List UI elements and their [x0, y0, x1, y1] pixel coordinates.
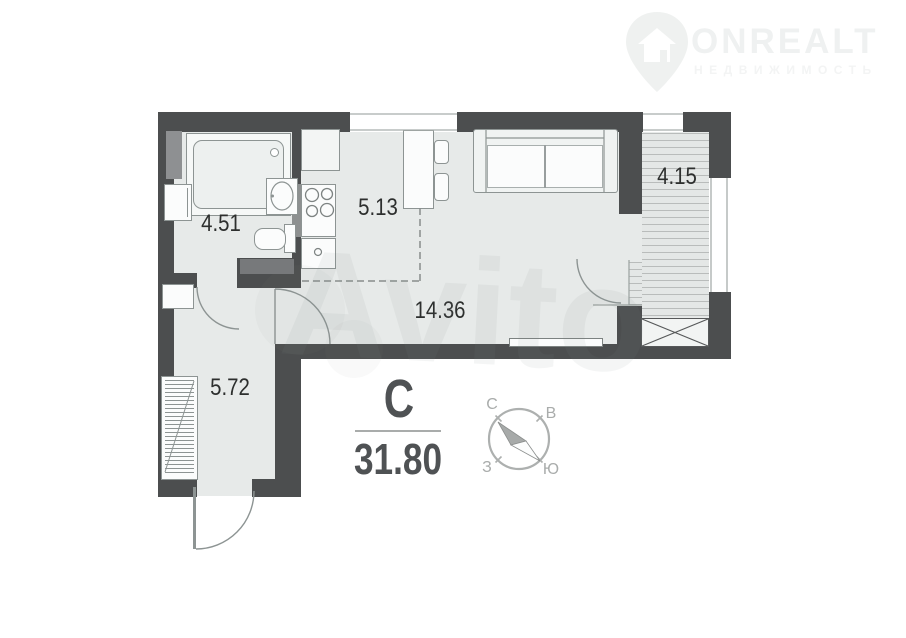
area-label-balcony: 4.15: [657, 163, 697, 191]
floorplan-screenshot: ONREALT НЕДВИЖИМОСТЬ: [0, 0, 906, 638]
bar-stool-2: [434, 173, 449, 201]
wardrobe: [161, 376, 198, 480]
wall-right-upper: [709, 120, 731, 178]
washbasin: [266, 178, 298, 215]
area-label-bathroom: 4.51: [201, 210, 241, 238]
window-balcony-top: [643, 112, 683, 132]
sofa-seat-left: [487, 145, 545, 188]
wall-hallway-bottom-right: [252, 479, 301, 497]
compass-ticks: [496, 416, 543, 463]
north-letter: С: [384, 368, 414, 430]
compass-label-north: С: [486, 396, 498, 414]
bathroom-cabinet-handle: [187, 188, 188, 217]
wardrobe-hangers: [165, 380, 194, 476]
window-balcony-right: [709, 178, 731, 292]
compass-label-south: Ю: [543, 461, 559, 479]
wall-right-lower: [709, 292, 731, 359]
compass-circle: [489, 409, 549, 469]
area-label-hallway: 5.72: [210, 374, 250, 402]
wall-balcony-divider-bottom: [617, 306, 642, 359]
balcony-hatch-area-small: [629, 262, 642, 305]
compass-needle-north: [498, 422, 526, 445]
kitchen-stove: [301, 184, 336, 237]
toilet-bowl: [254, 228, 286, 250]
total-area: 31.80: [354, 435, 442, 485]
compass-needle-south: [511, 441, 540, 461]
balcony-storage-box: [641, 318, 709, 347]
entrance-door-arc: [196, 491, 254, 549]
compass-label-east: В: [546, 405, 557, 423]
logo-brand-text: ONREALT: [691, 22, 879, 62]
hallway-cabinet: [162, 284, 194, 309]
logo-tagline-text: НЕДВИЖИМОСТЬ: [694, 63, 878, 77]
area-label-living: 14.36: [414, 297, 465, 325]
bar-table: [403, 130, 434, 209]
kitchen-counter: [301, 129, 340, 171]
kitchen-sink-cabinet: [301, 238, 336, 269]
balcony-hatch-area: [642, 133, 709, 317]
sofa-seat-right: [545, 145, 603, 188]
total-divider-line: [355, 430, 441, 432]
window-kitchen: [350, 112, 457, 132]
compass-rose: [489, 409, 549, 469]
compass-label-west: З: [482, 459, 492, 477]
wall-hallway-bottom-left: [158, 479, 197, 497]
shaft-bathroom: [240, 259, 294, 274]
bathtub-drain: [270, 148, 279, 157]
wall-hallway-right: [275, 344, 301, 497]
vent-pillar: [166, 131, 182, 179]
bar-stool-1: [434, 140, 449, 164]
radiator: [509, 338, 603, 347]
wall-balcony-divider-top: [619, 132, 642, 214]
area-label-kitchen: 5.13: [358, 194, 398, 222]
onrealt-pin-icon: [622, 10, 692, 95]
